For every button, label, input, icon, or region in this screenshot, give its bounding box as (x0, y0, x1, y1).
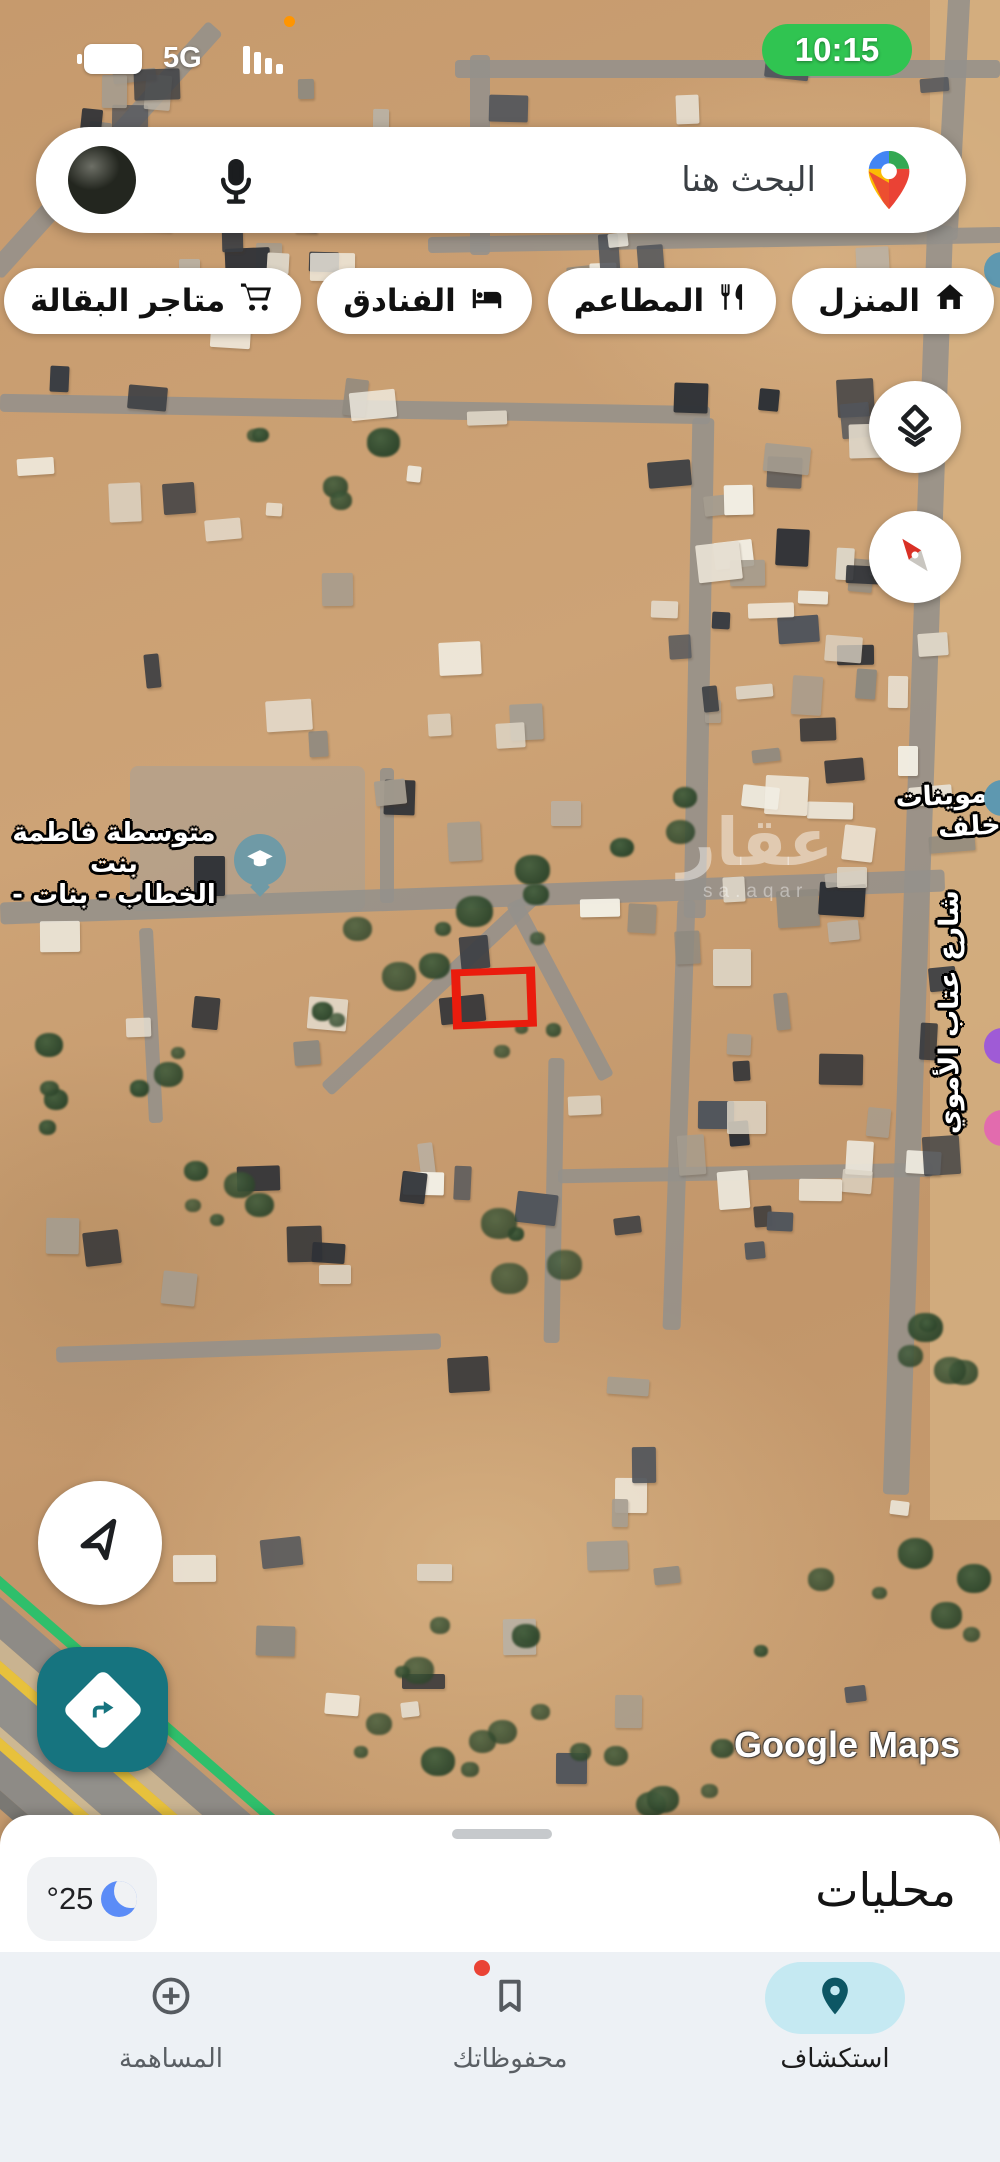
sheet-drag-handle[interactable] (452, 1829, 552, 1839)
status-bar: 5G 10:15 (0, 0, 1000, 90)
school-label-line1: متوسطة فاطمة بنت (0, 818, 228, 880)
chip-label: المنزل (818, 283, 920, 319)
directions-button[interactable] (37, 1647, 168, 1772)
store-poi-label[interactable]: تموينات خلف (824, 777, 1000, 851)
battery-icon (84, 44, 142, 74)
compass-button[interactable] (869, 511, 961, 603)
contribute-plus-icon (148, 1973, 194, 2023)
street-name-label: شارع عتاب الأموي (934, 862, 966, 1162)
status-time-text: 10:15 (795, 31, 879, 69)
layers-icon (889, 399, 941, 455)
chip-grocery[interactable]: متاجر البقالة (4, 268, 301, 334)
chip-hotels[interactable]: الفنادق (317, 268, 532, 334)
search-input[interactable]: البحث هنا (681, 127, 816, 233)
chip-restaurants[interactable]: المطاعم (548, 268, 776, 334)
restaurants-icon (716, 280, 750, 322)
signal-strength-icon (243, 44, 289, 74)
tab-explore[interactable]: استكشاف (725, 1962, 945, 2074)
user-avatar[interactable] (68, 146, 136, 214)
hotels-bed-icon (468, 278, 506, 324)
search-bar[interactable]: البحث هنا (36, 127, 966, 233)
chip-label: متاجر البقالة (30, 283, 225, 319)
home-icon (932, 279, 968, 323)
tab-saved[interactable]: محفوظاتك (400, 1962, 620, 2074)
aqar-watermark-subtext: sa.aqar (678, 882, 833, 901)
sheet-title: محليات (815, 1863, 956, 1917)
explore-pin-icon (813, 1974, 857, 2022)
aqar-watermark: عقار sa.aqar (678, 810, 833, 901)
tab-contribute[interactable]: المساهمة (61, 1962, 281, 2074)
mic-in-use-dot (284, 16, 295, 27)
weather-temperature: °25 (47, 1881, 94, 1917)
layers-button[interactable] (869, 381, 961, 473)
compass-icon (889, 529, 941, 585)
selected-tab-pill (765, 1962, 905, 2034)
school-icon[interactable] (234, 834, 286, 886)
directions-icon (61, 1668, 143, 1750)
chip-label: الفنادق (343, 283, 456, 319)
chip-label: المطاعم (574, 283, 704, 319)
google-maps-pin-icon[interactable] (854, 145, 924, 219)
tab-saved-label: محفوظاتك (400, 2044, 620, 2074)
network-type: 5G (163, 42, 202, 75)
aqar-watermark-text: عقار (678, 804, 833, 881)
status-time[interactable]: 10:15 (762, 24, 912, 76)
highlighted-parcel-box (451, 967, 537, 1030)
crescent-moon-icon (101, 1881, 137, 1917)
weather-chip[interactable]: °25 (27, 1857, 157, 1941)
bottom-navigation: استكشاف محفوظاتك المساهمة (0, 1952, 1000, 2162)
category-chips-row[interactable]: المنزل المطاعم الفنادق متاجر البقالة وقو… (0, 268, 994, 336)
my-location-button[interactable] (38, 1481, 162, 1605)
google-maps-attribution: Google Maps (734, 1724, 960, 1766)
tab-contribute-label: المساهمة (61, 2044, 281, 2074)
notification-badge (474, 1960, 490, 1976)
saved-bookmark-icon (489, 1975, 531, 2021)
my-location-arrow-icon (72, 1513, 128, 1573)
tab-explore-label: استكشاف (725, 2044, 945, 2074)
microphone-icon[interactable] (208, 153, 264, 213)
grocery-cart-icon (237, 278, 275, 324)
school-poi-label[interactable]: متوسطة فاطمة بنت الخطاب - بنات - (0, 818, 228, 912)
school-label-line2: الخطاب - بنات - (0, 880, 228, 911)
chip-home[interactable]: المنزل (792, 268, 994, 334)
